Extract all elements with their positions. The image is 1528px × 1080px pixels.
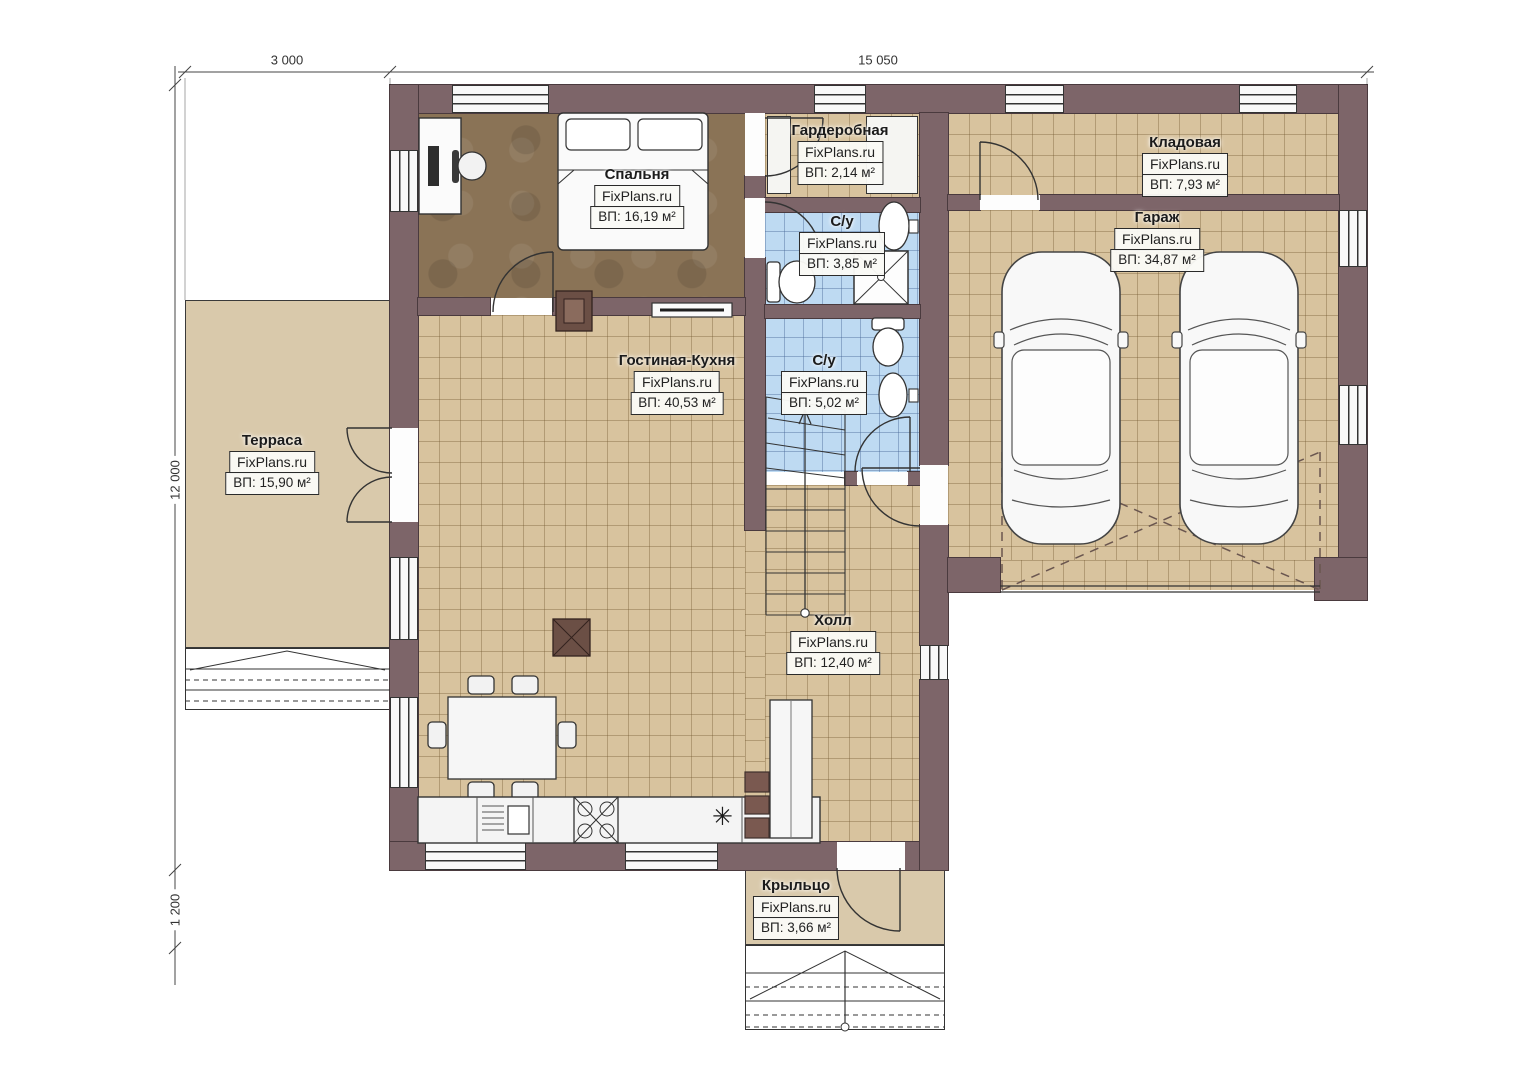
dimension-left: 12 000 (168, 456, 183, 504)
wash-basin (879, 373, 918, 417)
watermark: FixPlans.ru (797, 141, 883, 164)
watermark: FixPlans.ru (790, 631, 876, 654)
room-label-bedroom: Спальня FixPlans.ru ВП: 16,19 м² (590, 166, 684, 229)
floor-plan: Спальня FixPlans.ru ВП: 16,19 м² Гардеро… (0, 0, 1528, 1080)
room-label-bathroom2: С/у FixPlans.ru ВП: 5,02 м² (781, 352, 867, 415)
room-name: Спальня (605, 166, 670, 183)
desk-and-chair (419, 118, 486, 214)
stairs (766, 397, 845, 617)
room-label-living-kitchen: Гостиная-Кухня FixPlans.ru ВП: 40,53 м² (619, 352, 736, 415)
watermark: FixPlans.ru (1114, 228, 1200, 251)
room-name: Гостиная-Кухня (619, 352, 736, 369)
terrace-steps-marks (185, 651, 390, 701)
car-2 (1172, 252, 1306, 544)
room-name: С/у (812, 352, 835, 369)
room-area: ВП: 7,93 м² (1142, 174, 1228, 196)
toilet (872, 318, 904, 366)
room-area: ВП: 40,53 м² (630, 392, 724, 414)
tv-console (652, 303, 732, 317)
room-label-bathroom1: С/у FixPlans.ru ВП: 3,85 м² (799, 213, 885, 276)
watermark: FixPlans.ru (799, 232, 885, 255)
room-area: ВП: 15,90 м² (225, 472, 319, 494)
room-area: ВП: 3,85 м² (799, 253, 885, 275)
room-label-hall: Холл FixPlans.ru ВП: 12,40 м² (786, 612, 880, 675)
room-area: ВП: 34,87 м² (1110, 249, 1204, 271)
fireplace-living (553, 619, 590, 656)
kitchen-appliance-icon: ✳ (712, 805, 733, 830)
room-area: ВП: 3,66 м² (753, 917, 839, 939)
room-area: ВП: 16,19 м² (590, 206, 684, 228)
room-name: Кладовая (1149, 134, 1221, 151)
room-label-wardrobe: Гардеробная FixPlans.ru ВП: 2,14 м² (791, 122, 888, 185)
room-name: Гардеробная (791, 122, 888, 139)
room-name: Гараж (1135, 209, 1180, 226)
dimension-top-right: 15 050 (854, 53, 902, 68)
fireplace-wall (556, 291, 592, 331)
room-label-porch: Крыльцо FixPlans.ru ВП: 3,66 м² (753, 877, 839, 940)
room-area: ВП: 12,40 м² (786, 652, 880, 674)
room-name: Холл (814, 612, 852, 629)
watermark: FixPlans.ru (781, 371, 867, 394)
room-label-terrace: Терраса FixPlans.ru ВП: 15,90 м² (225, 432, 319, 495)
room-area: ВП: 5,02 м² (781, 392, 867, 414)
watermark: FixPlans.ru (229, 451, 315, 474)
watermark: FixPlans.ru (634, 371, 720, 394)
room-name: С/у (830, 213, 853, 230)
porch-steps-marks (745, 951, 945, 1031)
room-area: ВП: 2,14 м² (797, 162, 883, 184)
dimension-bottom-left: 1 200 (168, 890, 183, 931)
watermark: FixPlans.ru (1142, 153, 1228, 176)
car-1 (994, 252, 1128, 544)
room-label-garage: Гараж FixPlans.ru ВП: 34,87 м² (1110, 209, 1204, 272)
room-label-storage: Кладовая FixPlans.ru ВП: 7,93 м² (1142, 134, 1228, 197)
room-name: Крыльцо (762, 877, 830, 894)
room-name: Терраса (242, 432, 302, 449)
dining-table (428, 676, 576, 800)
dimension-top-left: 3 000 (267, 53, 308, 68)
watermark: FixPlans.ru (753, 896, 839, 919)
watermark: FixPlans.ru (594, 185, 680, 208)
